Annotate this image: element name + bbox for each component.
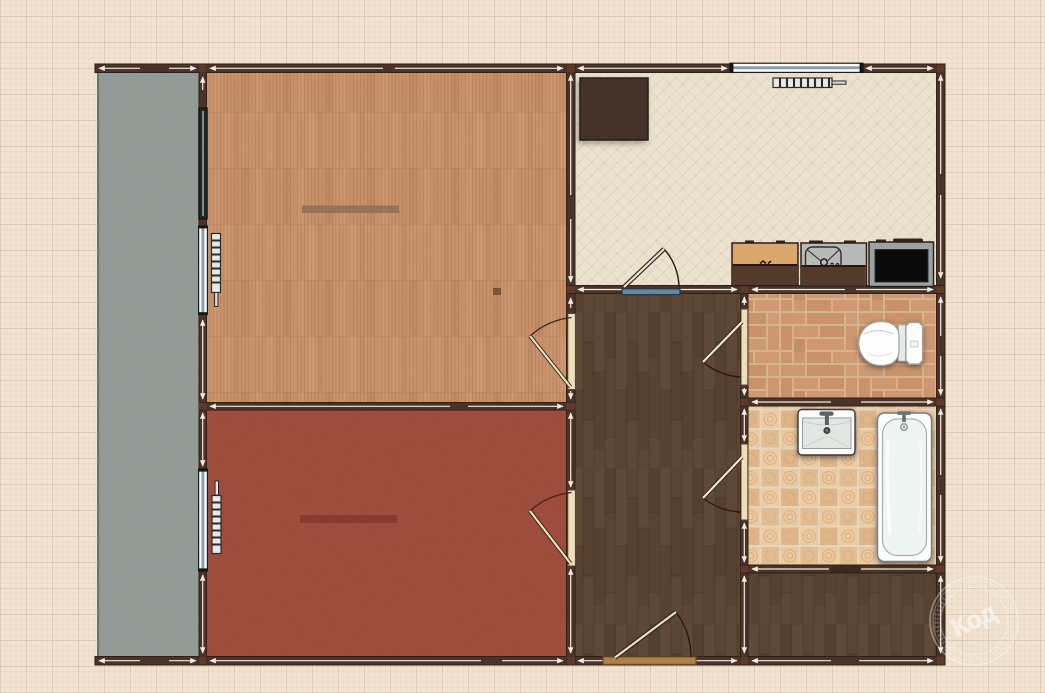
svg-text:Код: Код [947,598,1001,643]
